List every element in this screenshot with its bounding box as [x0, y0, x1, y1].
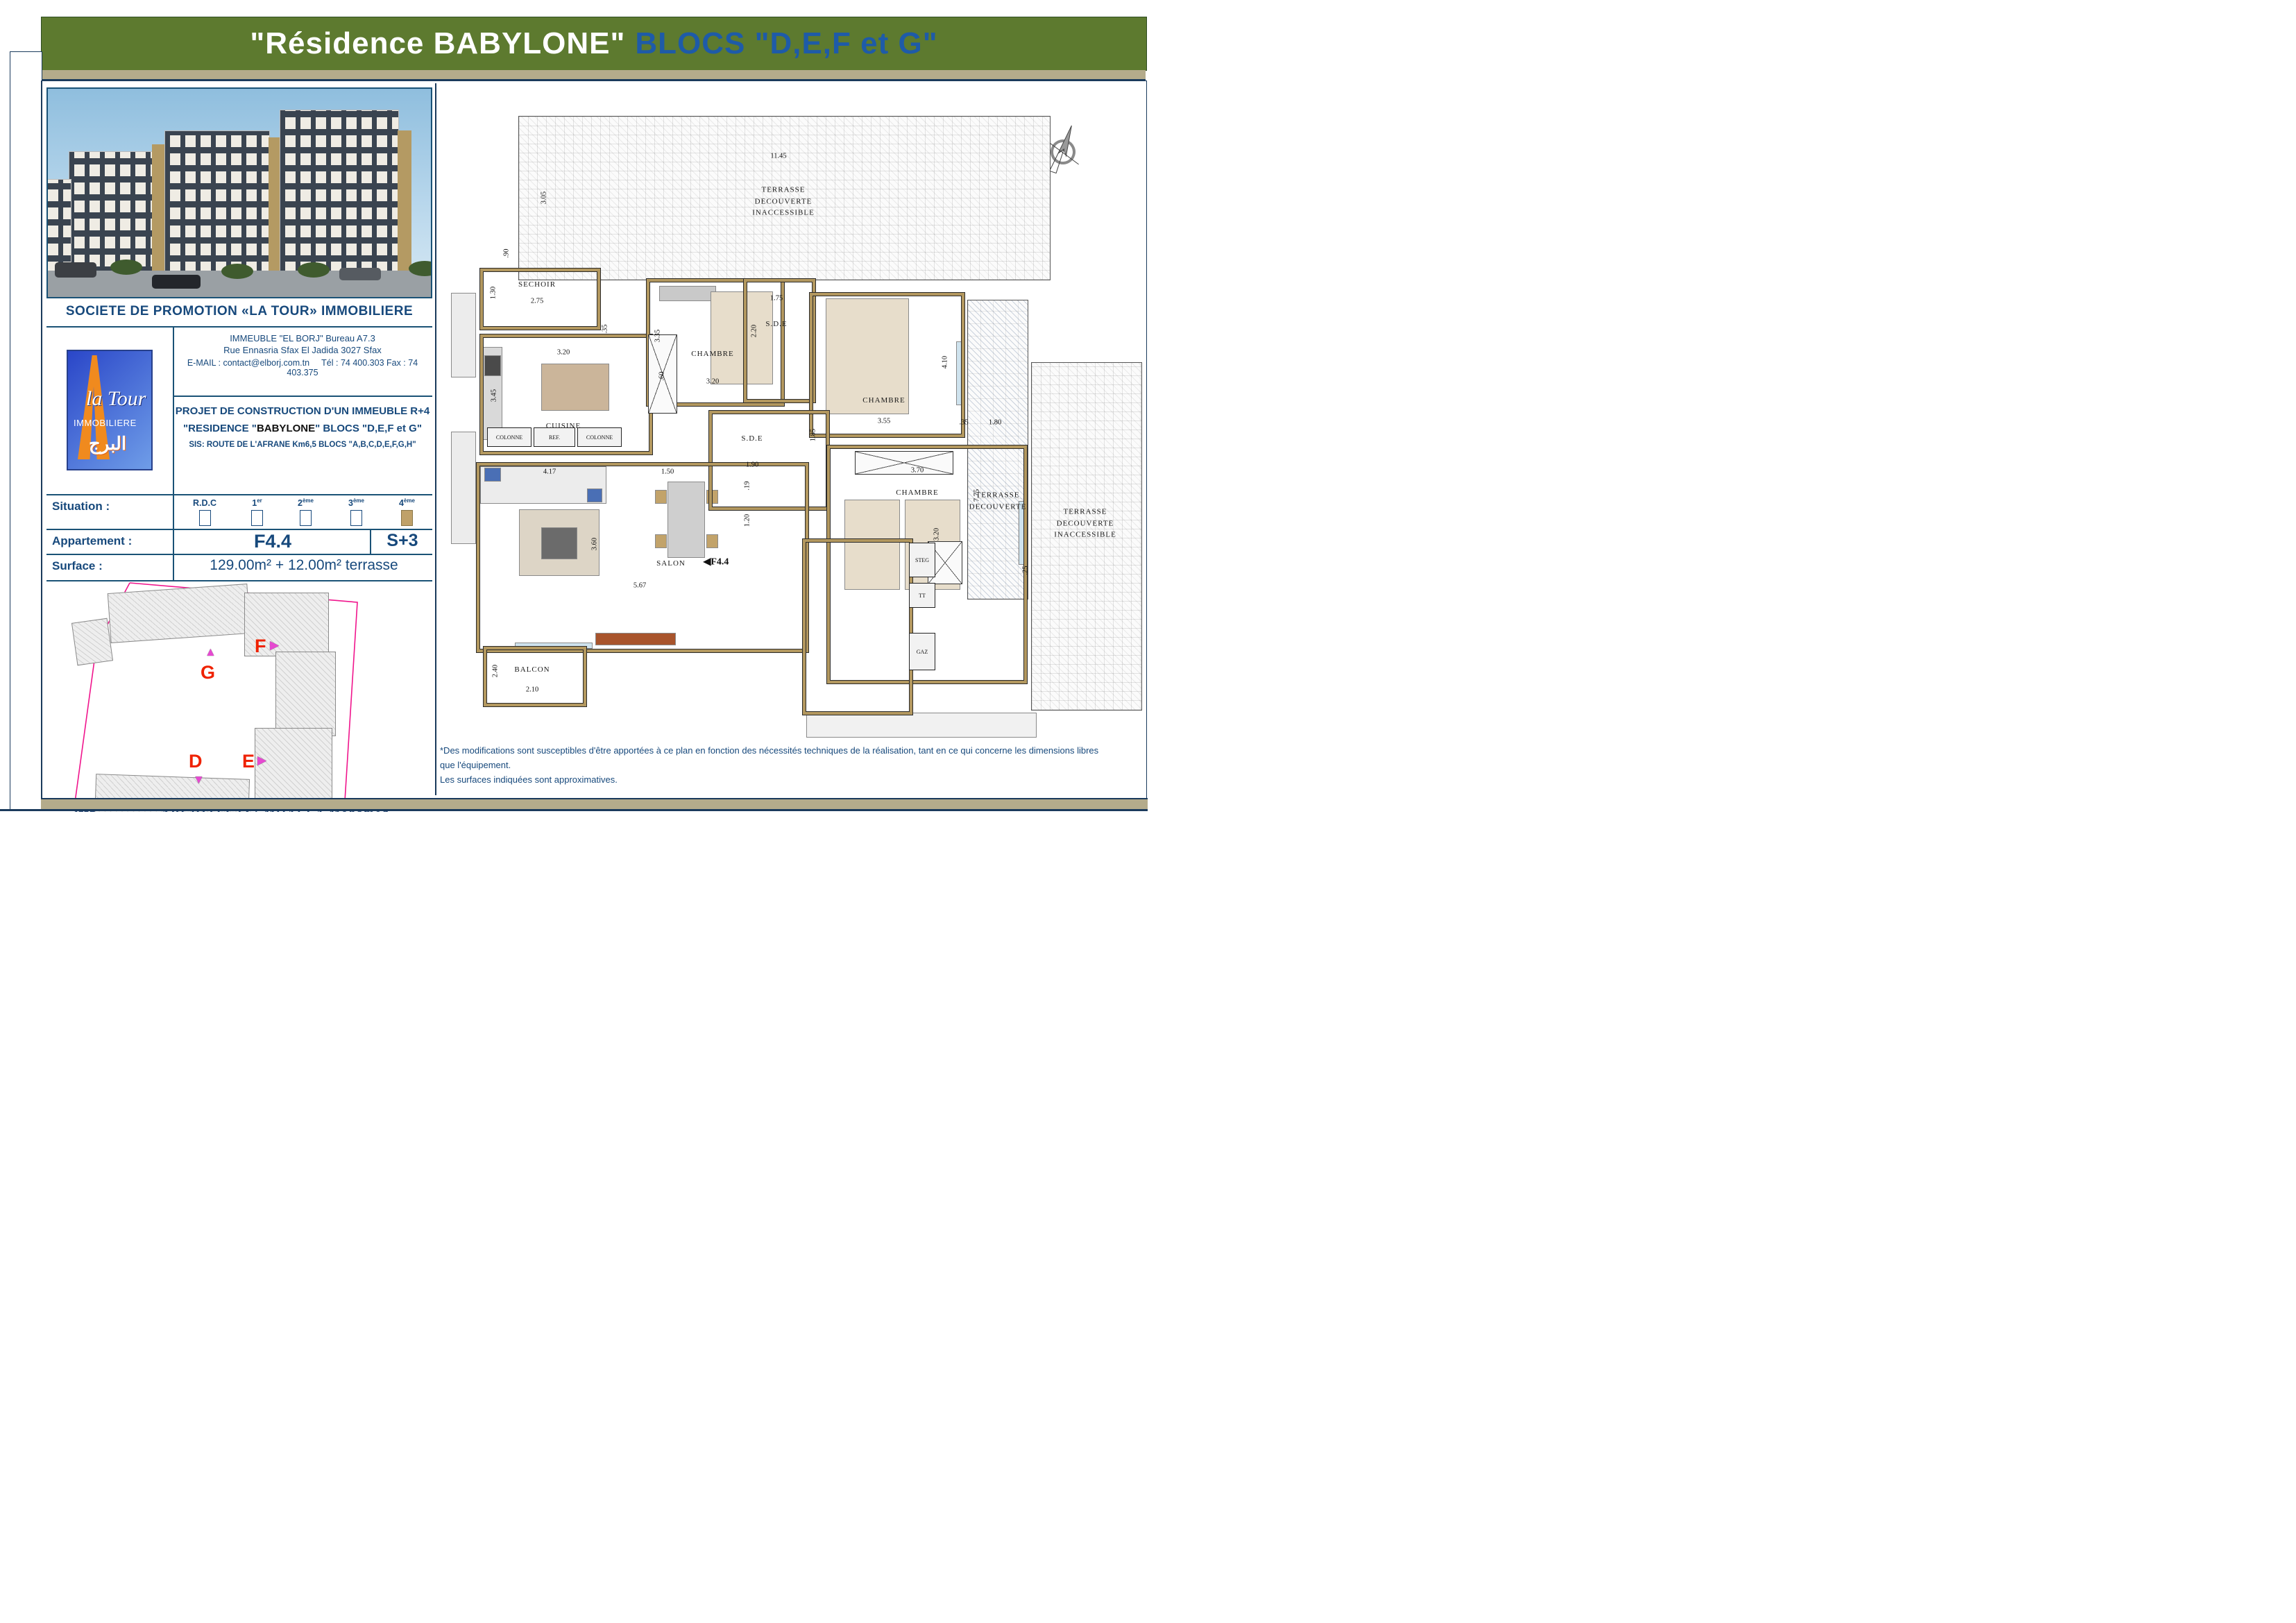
- utility-box-TT: TT: [909, 583, 935, 608]
- disclaimer: *Des modifications sont susceptibles d'ê…: [440, 744, 1141, 794]
- dimension-label: 2.20: [751, 325, 758, 337]
- logo-caption: IMMOBILIERE: [74, 418, 137, 428]
- dimension-label: .60: [658, 371, 666, 380]
- surface-row: Surface : 129.00m² + 12.00m² terrasse: [46, 554, 432, 581]
- dimension-label: 3.70: [911, 467, 924, 475]
- bottom-navy-line: [0, 809, 1148, 811]
- dimension-label: .19: [744, 481, 751, 490]
- header-khaki-strip: [41, 70, 1146, 80]
- dimension-label: 7.75: [973, 489, 981, 502]
- room-label: CHAMBRE: [862, 395, 905, 407]
- floor-option-2: 2ème: [298, 497, 314, 529]
- dimension-label: 3.20: [706, 378, 719, 386]
- photo-car: [55, 262, 96, 278]
- dimension-label: 11.45: [770, 153, 786, 160]
- contact-line: E-MAIL : contact@elborj.com.tn Tél : 74 …: [173, 358, 432, 377]
- photo-car: [152, 275, 201, 289]
- apartment-value: F4.4: [176, 531, 370, 552]
- dimension-label: .35: [959, 419, 968, 427]
- company-logo-cell: la Tour IMMOBILIERE البرج: [46, 326, 174, 494]
- site-arrow-icon: ▲: [205, 645, 216, 659]
- dimension-label: 3.45: [491, 389, 498, 402]
- room-label: CUISINE: [546, 420, 581, 432]
- room-salon: [477, 463, 808, 652]
- address-line2: Rue Ennasria Sfax El Jadida 3027 Sfax: [173, 345, 432, 355]
- dimension-label: 1.75: [770, 295, 783, 303]
- dimension-label: 3.60: [591, 538, 599, 550]
- building-photo: [46, 87, 432, 298]
- bottom-khaki-strip: [41, 798, 1148, 809]
- dimension-label: 1.85: [810, 429, 817, 441]
- floor-option-R.D.C: R.D.C: [193, 497, 216, 529]
- latour-logo: la Tour IMMOBILIERE البرج: [67, 350, 153, 470]
- dimension-label: .90: [503, 248, 511, 257]
- dimension-label: 2.75: [531, 298, 543, 305]
- dimension-label: 1.90: [746, 461, 758, 469]
- dimension-label: 2.40: [492, 665, 500, 677]
- furniture: [806, 713, 1037, 738]
- plan-sheet: "Résidence BABYLONE" BLOCS "D,E,F et G" …: [0, 0, 1148, 812]
- disclaimer-line3: Les surfaces indiquées sont approximativ…: [440, 773, 1141, 788]
- site-block-letter-G: G: [201, 662, 215, 683]
- room-label: BALCON: [514, 664, 550, 676]
- info-panel: SOCIETE DE PROMOTION «LA TOUR» IMMOBILIE…: [44, 83, 436, 795]
- site-block-letter-F: F: [255, 636, 266, 657]
- address-line1: IMMEUBLE "EL BORJ" Bureau A7.3: [173, 333, 432, 343]
- floor-option-4: 4ème: [399, 497, 415, 529]
- dimension-label: 3.35: [654, 330, 662, 342]
- dimension-label: 3.55: [878, 418, 890, 425]
- utility-box-COLONNE: COLONNE: [577, 427, 622, 447]
- project-line2: "RESIDENCE "BABYLONE" BLOCS "D,E,F et G": [173, 423, 432, 434]
- site-arrow-icon: ▶: [257, 754, 266, 767]
- project-sis: SIS: ROUTE DE L'AFRANE Km6,5 BLOCS "A,B,…: [173, 441, 432, 449]
- disclaimer-line2: que l'équipement.: [440, 758, 1141, 773]
- apartment-label: Appartement :: [52, 534, 132, 548]
- dimension-label: .35: [602, 324, 609, 333]
- photo-building: [152, 144, 164, 290]
- floor-option-1: 1er: [251, 497, 263, 529]
- furniture: [451, 293, 476, 377]
- floor-checkbox-R.D.C[interactable]: [199, 510, 211, 526]
- room-label: SECHOIR: [518, 279, 556, 291]
- room-label: S.D.E: [741, 433, 763, 445]
- logo-arabic-text: البرج: [89, 433, 126, 454]
- site-block: [108, 584, 251, 643]
- room-stairwell: [803, 539, 912, 715]
- room-label: CHAMBRE: [896, 487, 938, 499]
- site-block-letter-E: E: [242, 751, 255, 772]
- company-title-box: SOCIETE DE PROMOTION «LA TOUR» IMMOBILIE…: [46, 297, 432, 328]
- email-text: E-MAIL : contact@elborj.com.tn: [187, 358, 309, 368]
- dimension-label: 2.10: [526, 686, 538, 694]
- floor-checkbox-4[interactable]: [401, 510, 413, 526]
- project-block: PROJET DE CONSTRUCTION D'UN IMMEUBLE R+4…: [173, 397, 432, 494]
- site-arrow-icon: ▼: [193, 773, 205, 787]
- apartment-row: Appartement : F4.4 S+3: [46, 529, 432, 555]
- dimension-label: 1.30: [490, 287, 498, 299]
- site-block: [71, 618, 113, 666]
- situation-row: Situation : R.D.C1er2ème3ème4ème: [46, 494, 432, 530]
- room-label: SALON: [656, 558, 686, 570]
- furniture: [451, 432, 476, 544]
- dimension-label: 3.20: [557, 349, 570, 357]
- dimension-label: 4.10: [942, 356, 949, 368]
- site-block-letter-D: D: [189, 751, 203, 772]
- site-arrow-icon: ▶: [270, 638, 279, 652]
- room-label: TERRASSE DECOUVERTE INACCESSIBLE: [1054, 506, 1116, 541]
- dimension-label: 4.17: [543, 468, 556, 476]
- photo-car: [339, 268, 381, 280]
- floor-selector: R.D.C1er2ème3ème4ème: [176, 497, 432, 529]
- room-label: CHAMBRE: [691, 348, 733, 360]
- site-plan: GFDE▲▶▼▶: [46, 579, 432, 799]
- company-name: SOCIETE DE PROMOTION «LA TOUR» IMMOBILIE…: [66, 304, 413, 319]
- dimension-label: 1.20: [744, 514, 751, 527]
- dimension-label: .25: [1022, 566, 1030, 575]
- company-contact-block: IMMEUBLE "EL BORJ" Bureau A7.3 Rue Ennas…: [173, 326, 432, 397]
- apartment-code-tag: ◀F4.4: [704, 556, 729, 568]
- dimension-label: 3.05: [541, 192, 548, 204]
- logo-script-text: la Tour: [86, 387, 146, 411]
- dimension-label: 3.20: [933, 528, 941, 541]
- floor-checkbox-2[interactable]: [300, 510, 312, 526]
- floor-option-3: 3ème: [348, 497, 364, 529]
- apartment-type: S+3: [373, 531, 432, 551]
- floor-checkbox-1[interactable]: [251, 510, 263, 526]
- photo-tree: [298, 262, 330, 278]
- room-label: S.D.E: [765, 318, 787, 330]
- disclaimer-line1: *Des modifications sont susceptibles d'ê…: [440, 744, 1141, 758]
- left-margin-rail: [10, 51, 42, 810]
- header-band: "Résidence BABYLONE" BLOCS "D,E,F et G": [41, 17, 1147, 71]
- project-line1: PROJET DE CONSTRUCTION D'UN IMMEUBLE R+4: [173, 405, 432, 417]
- surface-label: Surface :: [52, 559, 103, 573]
- utility-box-GAZ: GAZ: [909, 633, 935, 670]
- situation-label: Situation :: [52, 500, 110, 513]
- wardrobe-xbox: [855, 451, 953, 475]
- dimension-label: 5.67: [633, 582, 646, 590]
- utility-box-COLONNE: COLONNE: [487, 427, 532, 447]
- utility-box-STEG: STEG: [909, 543, 935, 577]
- photo-tree: [110, 260, 142, 275]
- residence-title: "Résidence BABYLONE": [250, 26, 625, 61]
- room-label: TERRASSE DECOUVERTE INACCESSIBLE: [752, 184, 815, 219]
- surface-value: 129.00m² + 12.00m² terrasse: [176, 557, 432, 574]
- dimension-label: 1.50: [661, 468, 674, 476]
- floor-plan: COLONNEREF.COLONNESTEGTTGAZTERRASSE DECO…: [439, 85, 1145, 738]
- photo-tree: [221, 264, 253, 279]
- site-block: [275, 652, 336, 736]
- dimension-label: 1.80: [989, 419, 1001, 427]
- floor-checkbox-3[interactable]: [350, 510, 362, 526]
- blocs-title: BLOCS "D,E,F et G": [635, 26, 937, 61]
